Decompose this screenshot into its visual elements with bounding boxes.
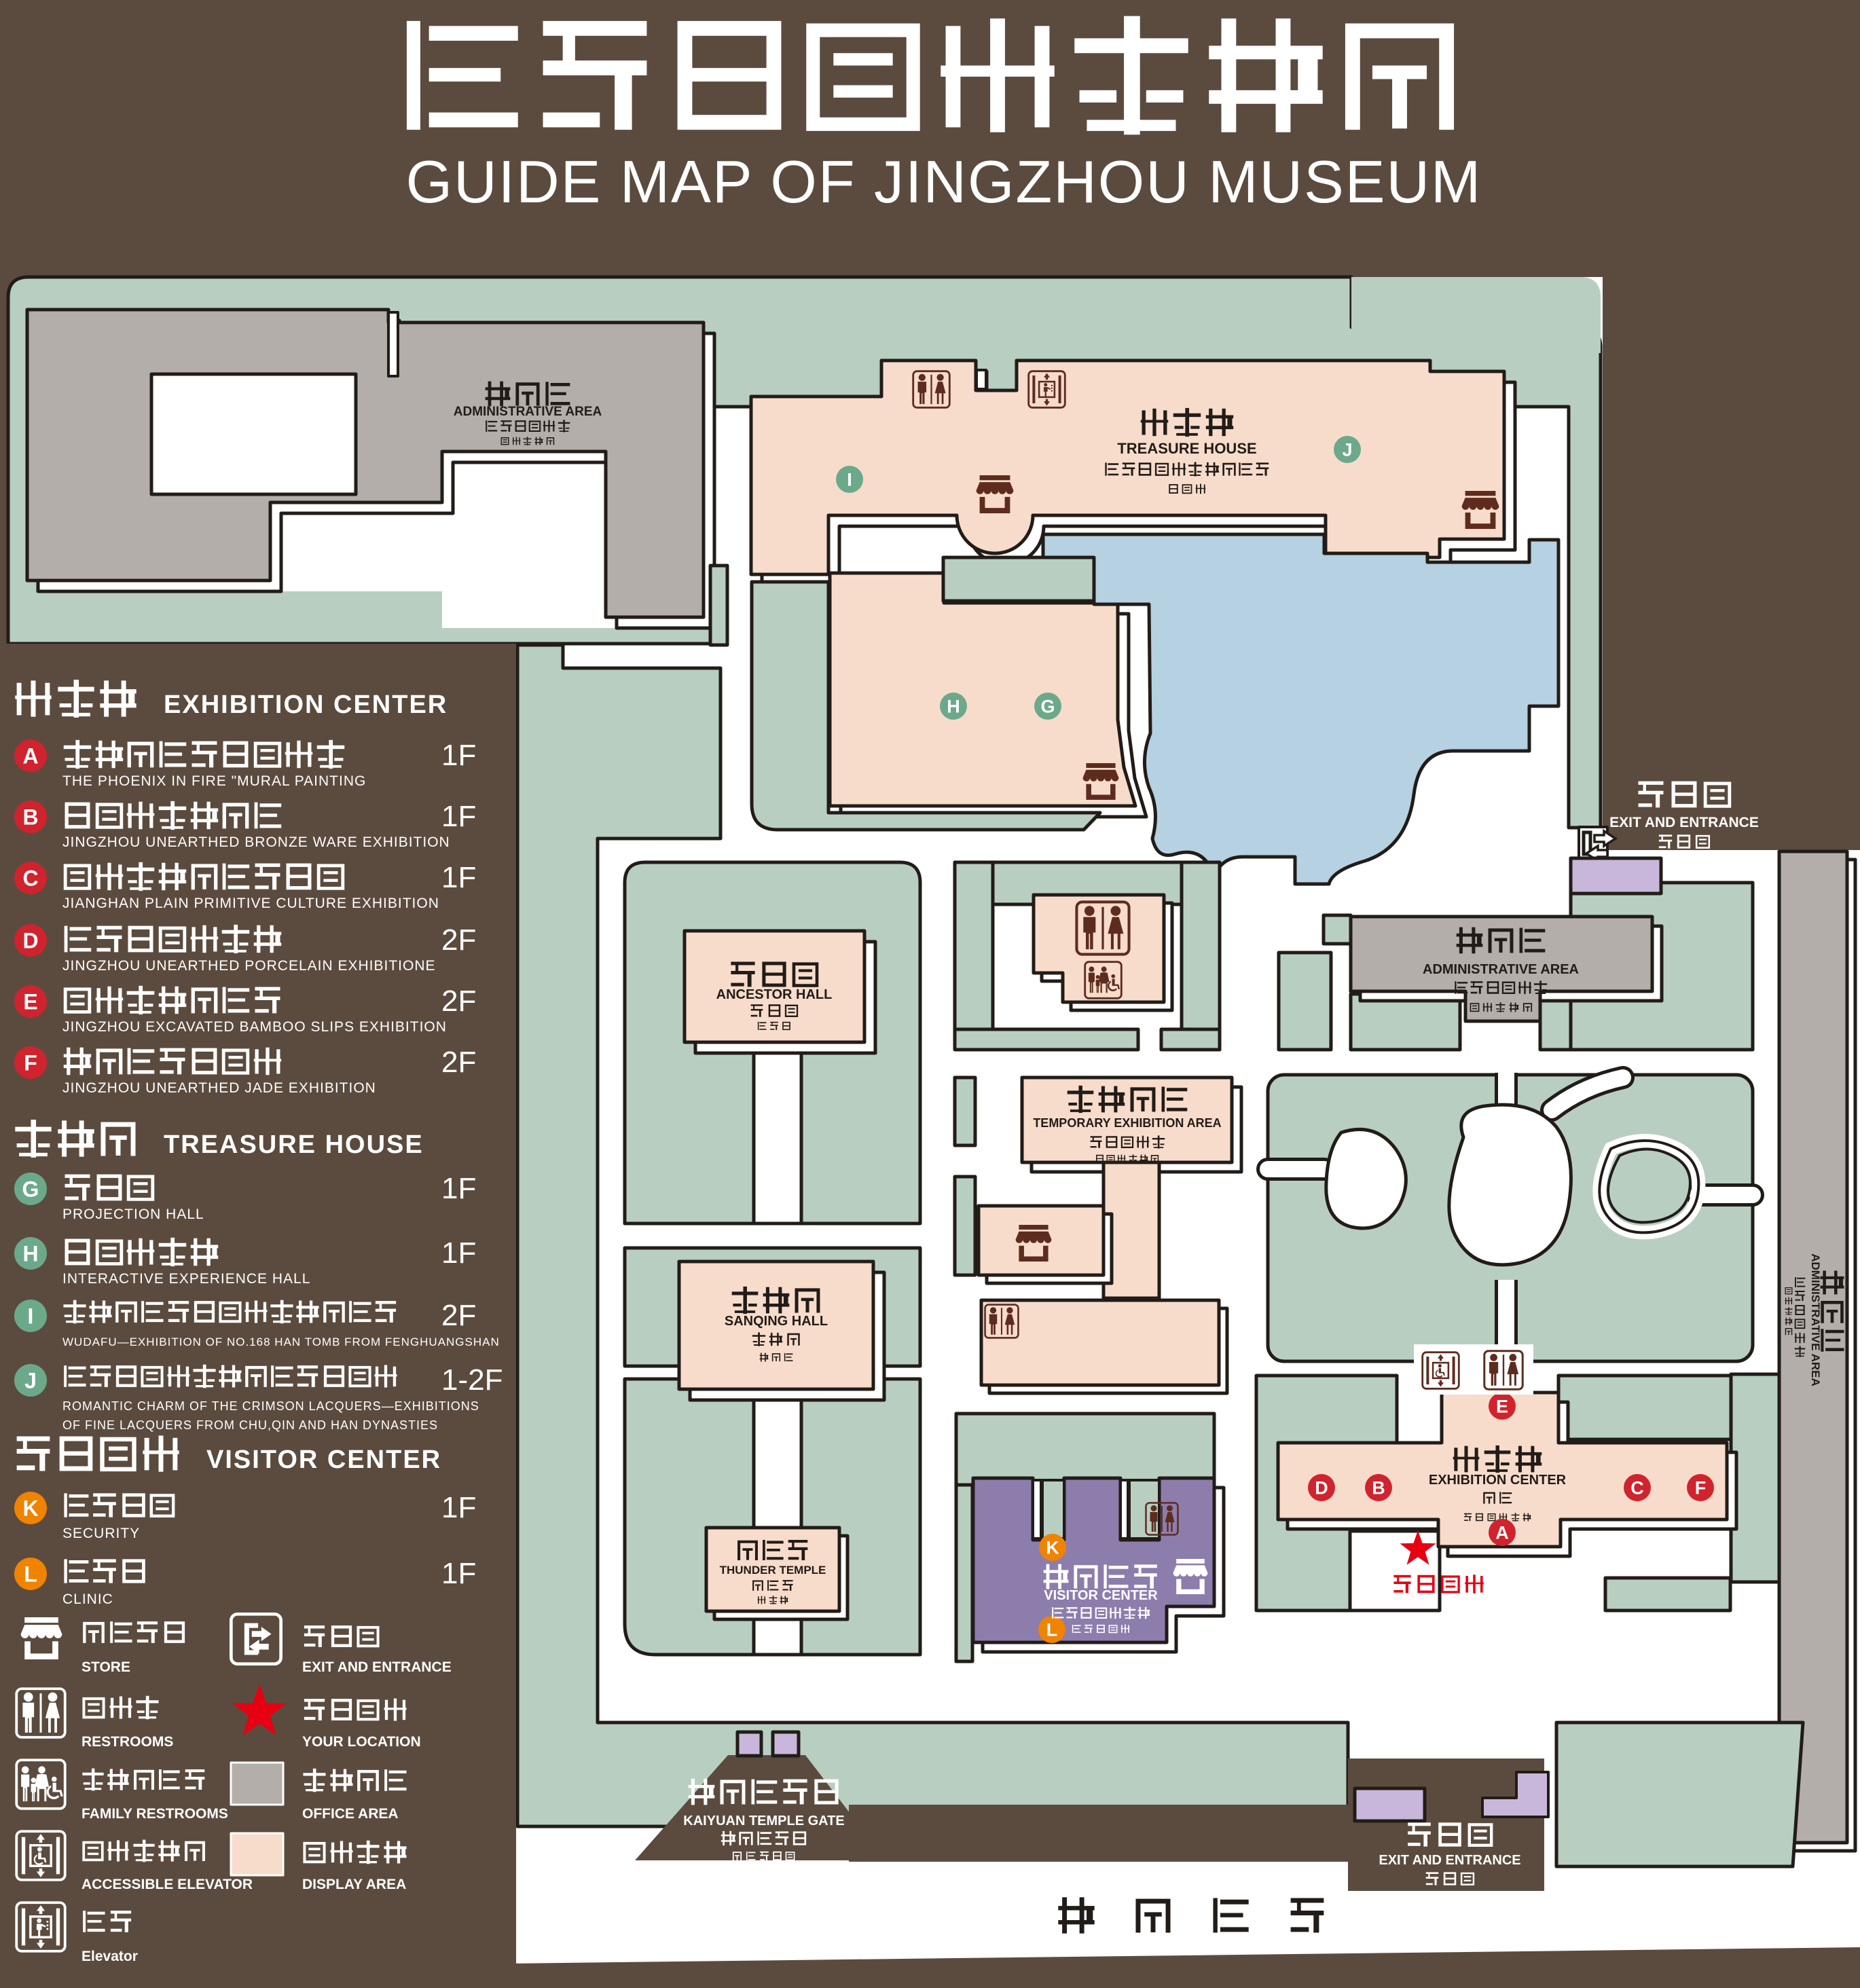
svg-text:WUDAFU—EXHIBITION OF NO.168 HA: WUDAFU—EXHIBITION OF NO.168 HAN TOMB FRO… (62, 1336, 500, 1348)
svg-text:TEMPORARY EXHIBITION AREA: TEMPORARY EXHIBITION AREA (1033, 1116, 1221, 1130)
svg-text:STORE: STORE (81, 1659, 130, 1675)
svg-text:F: F (1695, 1478, 1707, 1498)
svg-text:H: H (22, 1242, 38, 1266)
svg-text:B: B (1372, 1478, 1385, 1498)
svg-text:1F: 1F (441, 1236, 476, 1270)
svg-text:1F: 1F (441, 739, 476, 772)
svg-text:FAMILY RESTROOMS: FAMILY RESTROOMS (81, 1806, 228, 1822)
svg-text:K: K (22, 1496, 38, 1521)
svg-text:J: J (1342, 440, 1352, 460)
svg-text:JIANGHAN PLAIN PRIMITIVE CULTU: JIANGHAN PLAIN PRIMITIVE CULTURE EXHIBIT… (62, 896, 439, 911)
svg-text:JINGZHOU UNEARTHED JADE EXHIBI: JINGZHOU UNEARTHED JADE EXHIBITION (62, 1080, 376, 1096)
svg-text:G: G (22, 1177, 39, 1202)
svg-text:1F: 1F (441, 1491, 476, 1524)
svg-text:C: C (22, 866, 38, 891)
svg-text:2F: 2F (441, 923, 476, 957)
svg-text:JINGZHOU UNEARTHED PORCELAIN E: JINGZHOU UNEARTHED PORCELAIN EXHIBITIONE (62, 958, 436, 974)
svg-text:SECURITY: SECURITY (62, 1526, 140, 1541)
svg-text:VISITOR CENTER: VISITOR CENTER (206, 1446, 441, 1474)
svg-text:OFFICE AREA: OFFICE AREA (302, 1806, 399, 1822)
svg-text:1-2F: 1-2F (441, 1363, 503, 1397)
svg-text:1F: 1F (441, 1172, 476, 1205)
svg-text:2F: 2F (441, 1299, 476, 1332)
svg-text:2F: 2F (441, 984, 476, 1018)
svg-text:YOUR LOCATION: YOUR LOCATION (302, 1734, 421, 1750)
svg-text:D: D (1315, 1478, 1328, 1498)
svg-text:I: I (847, 470, 852, 490)
svg-text:H: H (947, 697, 960, 717)
svg-text:ACCESSIBLE ELEVATOR: ACCESSIBLE ELEVATOR (81, 1877, 253, 1892)
svg-text:ADMINISTRATIVE AREA: ADMINISTRATIVE AREA (1809, 1253, 1822, 1386)
svg-text:1F: 1F (441, 800, 476, 833)
svg-text:KAIYUAN TEMPLE GATE: KAIYUAN TEMPLE GATE (683, 1814, 844, 1828)
svg-text:JINGZHOU EXCAVATED BAMBOO SLIP: JINGZHOU EXCAVATED BAMBOO SLIPS EXHIBITI… (62, 1019, 447, 1035)
svg-text:SANQING HALL: SANQING HALL (725, 1314, 828, 1329)
svg-text:ADMINISTRATIVE AREA: ADMINISTRATIVE AREA (454, 405, 602, 419)
svg-text:C: C (1630, 1478, 1644, 1498)
svg-text:E: E (23, 990, 37, 1014)
svg-text:L: L (24, 1562, 37, 1587)
svg-text:A: A (1495, 1523, 1509, 1543)
svg-text:GUIDE MAP OF JINGZHOU MUSEUM: GUIDE MAP OF JINGZHOU MUSEUM (406, 148, 1482, 215)
svg-text:J: J (24, 1369, 37, 1393)
svg-text:1F: 1F (441, 1557, 476, 1590)
svg-text:D: D (22, 929, 38, 953)
svg-text:G: G (1040, 697, 1055, 717)
svg-text:OF FINE LACQUERS FROM CHU,QIN: OF FINE LACQUERS FROM CHU,QIN AND HAN DY… (62, 1418, 438, 1432)
svg-text:CLINIC: CLINIC (62, 1591, 113, 1607)
svg-text:F: F (24, 1051, 37, 1075)
svg-text:RESTROOMS: RESTROOMS (81, 1734, 173, 1750)
svg-text:TREASURE HOUSE: TREASURE HOUSE (1117, 440, 1256, 457)
svg-text:THE PHOENIX IN FIRE "MURAL PAI: THE PHOENIX IN FIRE "MURAL PAINTING (62, 773, 366, 789)
svg-text:TREASURE HOUSE: TREASURE HOUSE (164, 1130, 424, 1159)
svg-text:Elevator: Elevator (81, 1949, 138, 1964)
svg-text:PROJECTION HALL: PROJECTION HALL (62, 1207, 204, 1222)
svg-text:THUNDER TEMPLE: THUNDER TEMPLE (720, 1564, 826, 1577)
svg-text:EXHIBITION CENTER: EXHIBITION CENTER (164, 691, 448, 719)
svg-text:DISPLAY AREA: DISPLAY AREA (302, 1877, 406, 1892)
svg-text:EXHIBITION CENTER: EXHIBITION CENTER (1429, 1473, 1567, 1488)
svg-text:B: B (22, 805, 38, 830)
svg-text:EXIT AND ENTRANCE: EXIT AND ENTRANCE (1609, 815, 1759, 830)
svg-text:1F: 1F (441, 861, 476, 894)
svg-text:2F: 2F (441, 1046, 476, 1079)
svg-text:A: A (22, 744, 38, 769)
svg-text:JINGZHOU UNEARTHED BRONZE WARE: JINGZHOU UNEARTHED BRONZE WARE EXHIBITIO… (62, 834, 450, 850)
svg-text:ADMINISTRATIVE AREA: ADMINISTRATIVE AREA (1423, 962, 1579, 977)
svg-text:VISITOR CENTER: VISITOR CENTER (1044, 1588, 1158, 1603)
svg-text:INTERACTIVE EXPERIENCE HALL: INTERACTIVE EXPERIENCE HALL (62, 1271, 310, 1287)
svg-text:ROMANTIC CHARM OF THE CRIMSON: ROMANTIC CHARM OF THE CRIMSON LACQUERS—E… (62, 1399, 479, 1413)
svg-text:L: L (1046, 1620, 1058, 1640)
svg-text:I: I (28, 1304, 34, 1329)
svg-text:K: K (1046, 1538, 1059, 1558)
svg-text:EXIT AND ENTRANCE: EXIT AND ENTRANCE (1379, 1853, 1520, 1868)
svg-text:EXIT AND ENTRANCE: EXIT AND ENTRANCE (302, 1659, 452, 1675)
svg-text:E: E (1496, 1397, 1508, 1417)
svg-text:ANCESTOR HALL: ANCESTOR HALL (716, 987, 833, 1002)
